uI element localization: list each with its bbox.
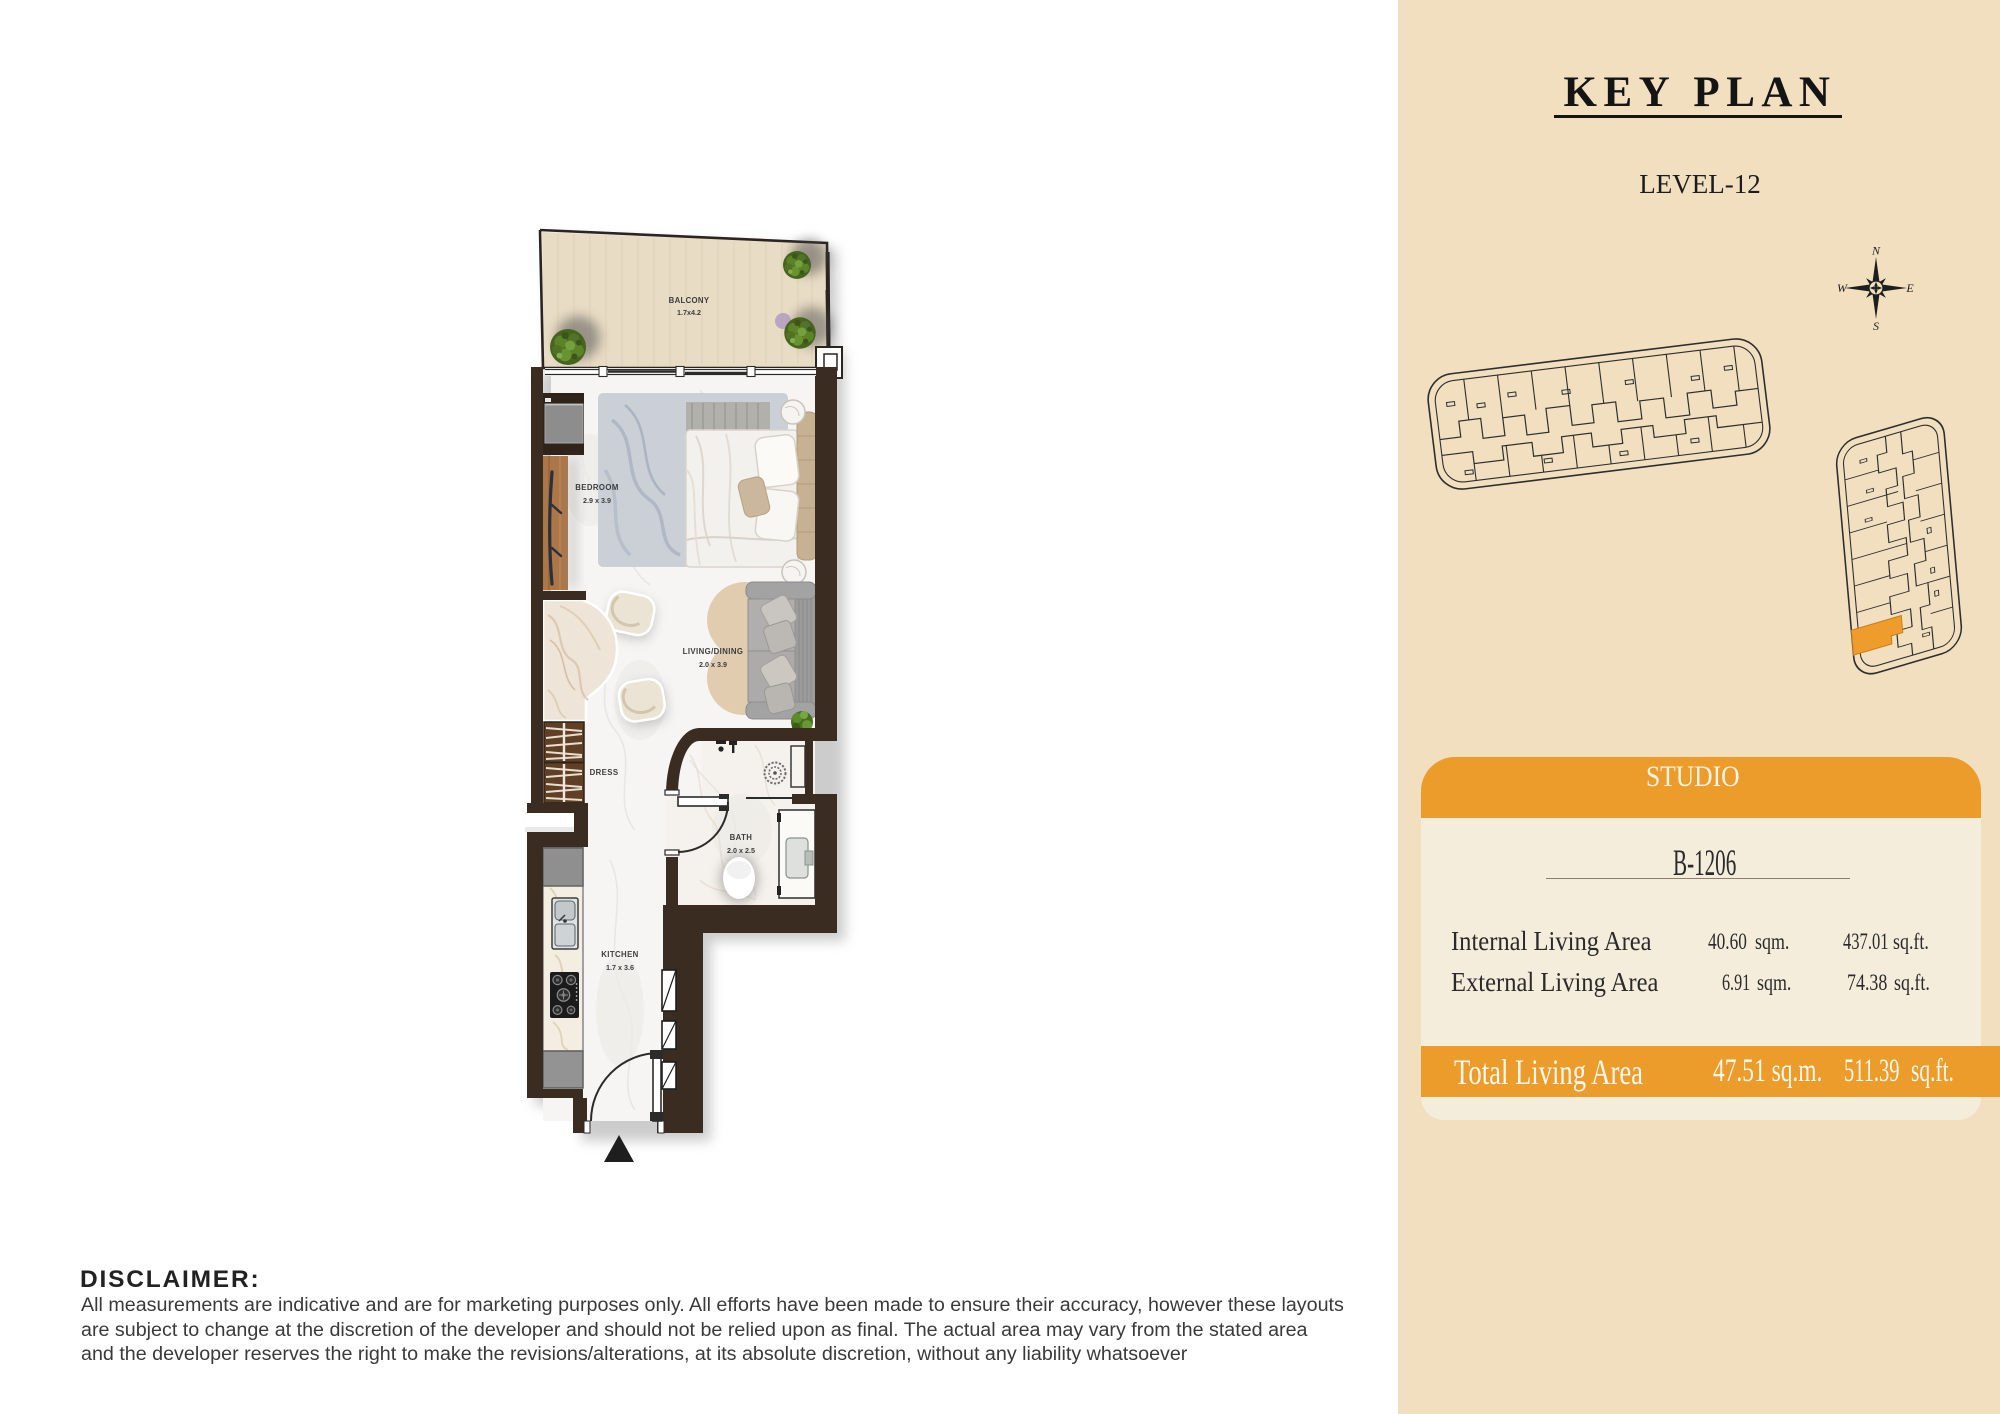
svg-text:KITCHEN: KITCHEN: [601, 950, 638, 959]
svg-text:E: E: [1905, 281, 1914, 295]
svg-text:1.7x4.2: 1.7x4.2: [677, 308, 701, 317]
svg-text:DRESS: DRESS: [590, 768, 619, 777]
svg-text:BATH: BATH: [730, 833, 753, 842]
svg-text:BALCONY: BALCONY: [669, 296, 710, 305]
svg-text:BEDROOM: BEDROOM: [575, 483, 619, 492]
svg-text:1.7 x 3.6: 1.7 x 3.6: [606, 963, 634, 972]
svg-text:S: S: [1873, 319, 1879, 330]
svg-text:LIVING/DINING: LIVING/DINING: [683, 647, 744, 656]
svg-text:2.9 x 3.9: 2.9 x 3.9: [583, 496, 611, 505]
svg-text:N: N: [1871, 246, 1881, 258]
svg-text:W: W: [1837, 281, 1848, 295]
svg-text:2.0 x 3.9: 2.0 x 3.9: [699, 660, 727, 669]
svg-text:2.0 x 2.5: 2.0 x 2.5: [727, 846, 755, 855]
